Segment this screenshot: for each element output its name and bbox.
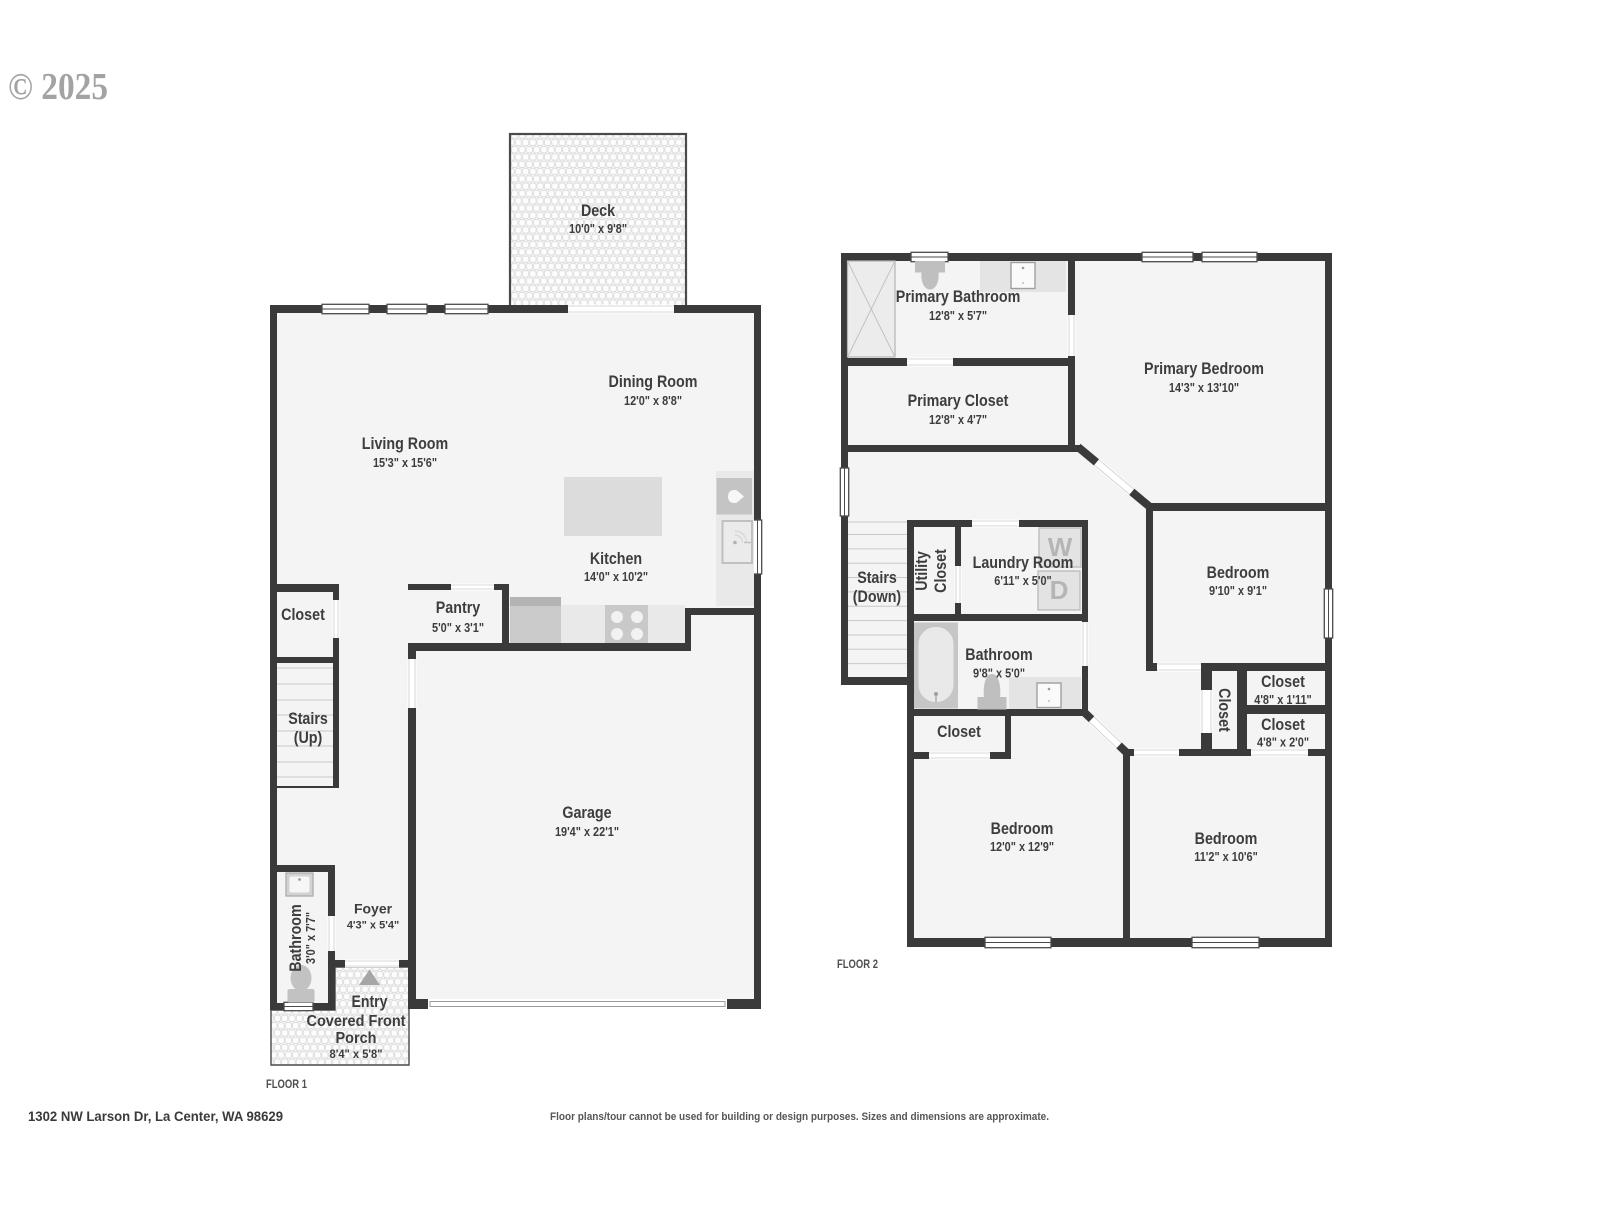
svg-text:9'8" x 5'0": 9'8" x 5'0" <box>973 666 1025 681</box>
svg-text:Bathroom: Bathroom <box>965 645 1033 664</box>
svg-text:Stairs: Stairs <box>288 709 328 728</box>
svg-text:Pantry: Pantry <box>436 598 481 617</box>
svg-text:5'0" x 3'1": 5'0" x 3'1" <box>432 620 484 635</box>
svg-text:Closet: Closet <box>937 722 981 741</box>
svg-text:Living Room: Living Room <box>362 434 448 453</box>
svg-text:4'8" x 2'0": 4'8" x 2'0" <box>1257 735 1309 750</box>
svg-text:14'3" x 13'10": 14'3" x 13'10" <box>1169 380 1239 395</box>
svg-text:Closet: Closet <box>931 549 950 593</box>
svg-text:12'8" x 4'7": 12'8" x 4'7" <box>929 412 987 427</box>
svg-text:Closet: Closet <box>1261 715 1305 734</box>
svg-text:Closet: Closet <box>1215 688 1234 732</box>
svg-text:Closet: Closet <box>281 605 325 624</box>
svg-text:Floor plans/tour cannot be use: Floor plans/tour cannot be used for buil… <box>550 1111 1049 1123</box>
svg-text:8'4" x 5'8": 8'4" x 5'8" <box>330 1047 383 1061</box>
svg-text:1302 NW Larson Dr, La Center,: 1302 NW Larson Dr, La Center, WA 98629 <box>28 1109 283 1124</box>
svg-text:6'11" x 5'0": 6'11" x 5'0" <box>994 573 1052 588</box>
svg-text:D: D <box>1050 575 1069 605</box>
svg-text:10'0" x 9'8": 10'0" x 9'8" <box>569 221 627 236</box>
svg-text:Covered Front: Covered Front <box>307 1013 407 1030</box>
svg-text:FLOOR 2: FLOOR 2 <box>837 957 878 971</box>
svg-text:Dining Room: Dining Room <box>609 372 698 391</box>
svg-text:Bedroom: Bedroom <box>1207 563 1270 582</box>
svg-text:12'0" x 8'8": 12'0" x 8'8" <box>624 393 682 408</box>
svg-text:Primary Bathroom: Primary Bathroom <box>896 287 1021 306</box>
svg-text:Closet: Closet <box>1261 672 1305 691</box>
svg-text:19'4" x 22'1": 19'4" x 22'1" <box>555 824 619 839</box>
svg-text:9'10" x 9'1": 9'10" x 9'1" <box>1209 583 1267 598</box>
svg-text:(Up): (Up) <box>294 728 323 747</box>
svg-text:4'3" x 5'4": 4'3" x 5'4" <box>347 920 399 932</box>
svg-text:Bedroom: Bedroom <box>991 819 1054 838</box>
svg-text:Utility: Utility <box>912 551 931 591</box>
svg-text:(Down): (Down) <box>853 587 901 606</box>
svg-text:15'3" x 15'6": 15'3" x 15'6" <box>373 455 437 470</box>
svg-text:12'0" x 12'9": 12'0" x 12'9" <box>990 839 1054 854</box>
svg-text:Garage: Garage <box>562 803 611 822</box>
svg-text:Porch: Porch <box>336 1030 377 1047</box>
svg-text:Laundry Room: Laundry Room <box>973 553 1074 572</box>
svg-text:Kitchen: Kitchen <box>590 549 642 568</box>
svg-text:Bedroom: Bedroom <box>1195 829 1258 848</box>
svg-text:Primary Closet: Primary Closet <box>908 391 1009 410</box>
svg-text:Deck: Deck <box>581 201 616 220</box>
svg-text:FLOOR 1: FLOOR 1 <box>266 1077 307 1091</box>
svg-text:3'0" x 7'7": 3'0" x 7'7" <box>303 912 318 964</box>
svg-text:Primary Bedroom: Primary Bedroom <box>1144 359 1264 378</box>
svg-text:Foyer: Foyer <box>354 901 393 917</box>
svg-text:12'8" x 5'7": 12'8" x 5'7" <box>929 308 987 323</box>
svg-text:Entry: Entry <box>352 992 388 1011</box>
svg-text:11'2" x 10'6": 11'2" x 10'6" <box>1194 849 1258 864</box>
svg-text:Stairs: Stairs <box>857 568 897 587</box>
svg-text:4'8" x 1'11": 4'8" x 1'11" <box>1254 692 1312 707</box>
svg-text:14'0" x 10'2": 14'0" x 10'2" <box>584 569 648 584</box>
svg-text:© 2025: © 2025 <box>8 66 108 108</box>
